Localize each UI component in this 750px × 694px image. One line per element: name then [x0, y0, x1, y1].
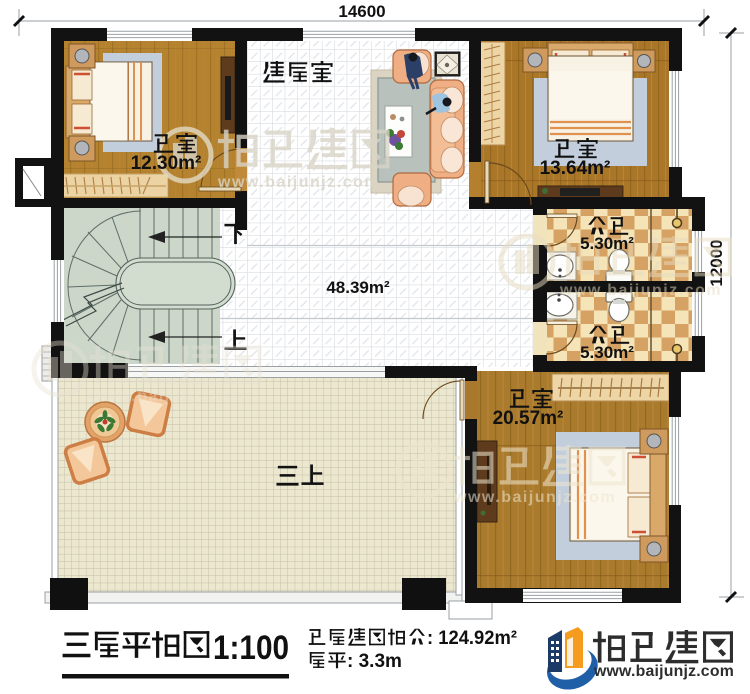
svg-text:14600: 14600 [338, 2, 385, 21]
svg-text:www.baijunjz.com: www.baijunjz.com [89, 388, 252, 405]
svg-text:1:100: 1:100 [213, 629, 289, 667]
svg-text:20.57m²: 20.57m² [493, 408, 564, 429]
svg-text:5.30m²: 5.30m² [580, 343, 634, 362]
svg-text:5.30m²: 5.30m² [580, 234, 634, 253]
svg-text:48.39m²: 48.39m² [326, 278, 390, 297]
svg-text:www.baijunjz.com: www.baijunjz.com [217, 174, 380, 191]
svg-text:www.baijunjz.com: www.baijunjz.com [559, 282, 722, 299]
svg-text:: 124.92m²: : 124.92m² [427, 628, 517, 649]
svg-text:www.baijunjz.com: www.baijunjz.com [593, 663, 734, 680]
svg-text:: 3.3m: : 3.3m [347, 651, 402, 672]
svg-text:13.64m²: 13.64m² [540, 158, 611, 179]
svg-text:12.30m²: 12.30m² [131, 153, 202, 174]
svg-text:www.baijunjz.com: www.baijunjz.com [453, 489, 616, 506]
